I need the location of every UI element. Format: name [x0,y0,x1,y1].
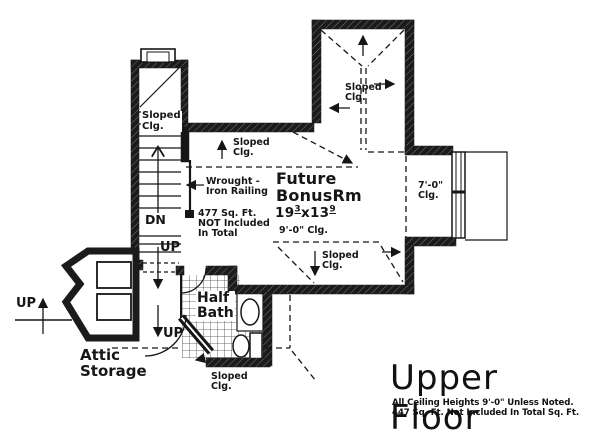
chimney [66,251,136,338]
floorplan-page: SlopedClg. DN SlopedClg. Wrought -Iron R… [0,0,600,434]
label-attic-storage: AtticStorage [80,348,147,380]
label-7ft-ceiling: 7'-0"Clg. [418,181,443,201]
label-wrought-iron-railing: Wrought -Iron Railing [206,177,268,197]
label-sloped-clg-stairwell: SlopedClg. [141,111,182,132]
label-sloped-clg-bath: SlopedClg. [211,372,248,392]
page-title: Upper Floor [390,358,600,434]
label-sloped-clg-bottom: SlopedClg. [322,251,359,271]
label-up-attic-door: UP [163,327,183,341]
label-up-left: UP [16,297,36,311]
railing [185,160,194,218]
title-note-1: All Ceiling Heights 9'-0" Unless Noted. [392,398,574,408]
label-bonus-ceiling: 9'-0" Clg. [279,226,328,236]
opening-header-dashes [143,263,179,272]
label-sqft-note: 477 Sq. Ft. NOT Included In Total [198,209,270,239]
label-half-bath: HalfBath [196,291,235,321]
window [452,152,465,238]
label-bonus-dimensions: 193x139 [275,206,336,220]
title-note-2: 447 Sq. Ft. Not Included In Total Sq. Ft… [392,408,579,418]
label-future-bonus-room: FutureBonusRm [276,171,362,205]
roof-outline-right [465,152,507,240]
label-dn: DN [145,213,166,226]
label-sloped-clg-topright: SlopedClg. [345,83,382,103]
bath-slope-arrow-icon [196,358,205,360]
sink-fixture [237,293,263,331]
label-sloped-clg-center: SlopedClg. [233,138,270,158]
stair-top-window [141,49,175,62]
label-up-landing: UP [160,241,180,255]
